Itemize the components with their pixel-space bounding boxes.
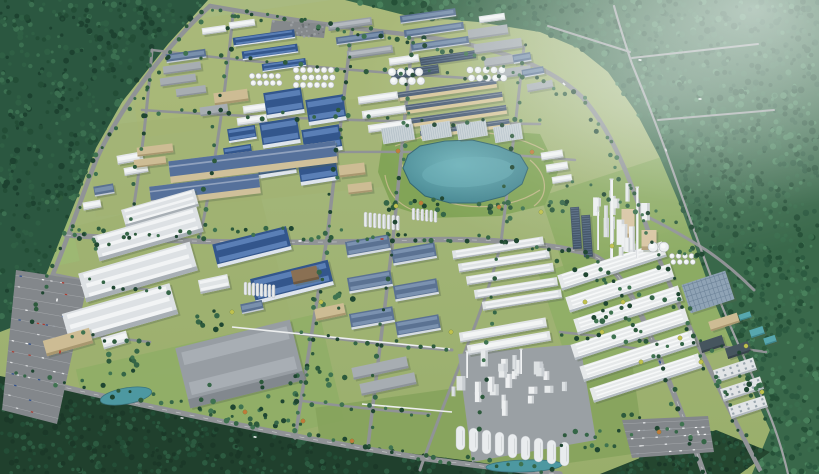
scene-svg — [0, 0, 819, 474]
haze-layer — [0, 0, 819, 474]
industrial-park-aerial-render — [0, 0, 819, 474]
